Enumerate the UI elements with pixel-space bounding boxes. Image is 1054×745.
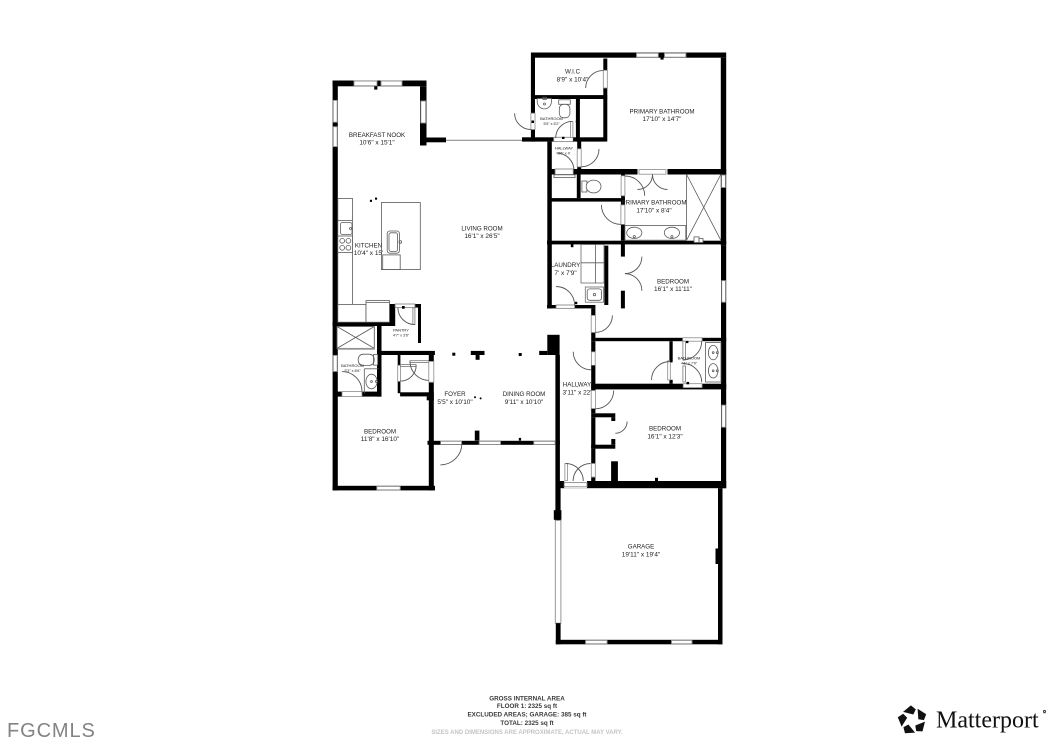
svg-text:GARAGE: GARAGE (628, 544, 654, 551)
svg-text:FGCMLS: FGCMLS (7, 720, 96, 742)
svg-text:16'1" x 12'3": 16'1" x 12'3" (647, 433, 683, 440)
svg-text:17'10" x 8'4": 17'10" x 8'4" (636, 208, 672, 215)
svg-text:17'10" x 14'7": 17'10" x 14'7" (643, 116, 683, 123)
svg-text:Matterport: Matterport (936, 708, 1039, 734)
svg-text:PRIMARY BATHROOM: PRIMARY BATHROOM (622, 200, 687, 207)
svg-text:LIVING ROOM: LIVING ROOM (461, 225, 502, 232)
svg-text:19'11" x 19'4": 19'11" x 19'4" (622, 552, 661, 559)
svg-text:BATHROOM: BATHROOM (540, 116, 563, 121)
svg-text:GROSS INTERNAL AREA: GROSS INTERNAL AREA (489, 696, 565, 703)
svg-text:SIZES AND DIMENSIONS ARE APPRO: SIZES AND DIMENSIONS ARE APPROXIMATE, AC… (431, 730, 623, 736)
svg-text:BEDROOM: BEDROOM (657, 278, 689, 285)
svg-text:FOYER: FOYER (444, 391, 466, 398)
svg-text:5'5" x 10'10": 5'5" x 10'10" (437, 399, 473, 406)
svg-text:5'3" x 8'6": 5'3" x 8'6" (344, 369, 361, 373)
svg-text:BATHROOM: BATHROOM (341, 363, 364, 368)
svg-text:16'1" x 26'5": 16'1" x 26'5" (464, 233, 500, 240)
svg-text:16'1" x 11'11": 16'1" x 11'11" (654, 286, 693, 293)
svg-text:7' x 7'9": 7' x 7'9" (554, 270, 577, 277)
svg-text:BEDROOM: BEDROOM (649, 426, 681, 433)
svg-text:LAUNDRY: LAUNDRY (551, 262, 580, 269)
svg-text:PANTRY: PANTRY (393, 328, 409, 333)
svg-text:PRIMARY BATHROOM: PRIMARY BATHROOM (630, 108, 695, 115)
svg-text:5'5" x 5'2": 5'5" x 5'2" (543, 122, 560, 126)
svg-text:BATHROOM: BATHROOM (678, 356, 701, 361)
svg-text:3'11" x 22': 3'11" x 22' (563, 389, 592, 396)
svg-text:8'9" x 10'4": 8'9" x 10'4" (557, 76, 589, 83)
svg-text:EXCLUDED AREAS; GARAGE: 385 sq: EXCLUDED AREAS; GARAGE: 385 sq ft (467, 711, 587, 718)
svg-text:3'6" x 4': 3'6" x 4' (558, 151, 571, 155)
svg-text:4'7" x 3'6": 4'7" x 3'6" (393, 334, 410, 338)
svg-text:DINING ROOM: DINING ROOM (503, 391, 546, 398)
svg-text:FLOOR 1: 2325 sq ft: FLOOR 1: 2325 sq ft (497, 703, 558, 710)
svg-text:KITCHEN: KITCHEN (355, 242, 382, 249)
svg-text:TOTAL: 2325 sq ft: TOTAL: 2325 sq ft (500, 720, 554, 727)
svg-text:10'4" x 15': 10'4" x 15' (354, 250, 383, 257)
svg-text:W.I.C: W.I.C (565, 69, 581, 76)
svg-text:10'6" x 15'1": 10'6" x 15'1" (359, 140, 395, 147)
svg-text:9'11" x 10'10": 9'11" x 10'10" (505, 399, 544, 406)
svg-text:BEDROOM: BEDROOM (364, 428, 396, 435)
svg-text:HALLWAY: HALLWAY (555, 145, 574, 150)
svg-text:BREAKFAST NOOK: BREAKFAST NOOK (349, 132, 406, 139)
svg-text:11'8" x 16'10": 11'8" x 16'10" (361, 436, 400, 443)
svg-text:4'1" x 7'9": 4'1" x 7'9" (681, 362, 698, 366)
svg-text:HALLWAY: HALLWAY (563, 382, 591, 389)
